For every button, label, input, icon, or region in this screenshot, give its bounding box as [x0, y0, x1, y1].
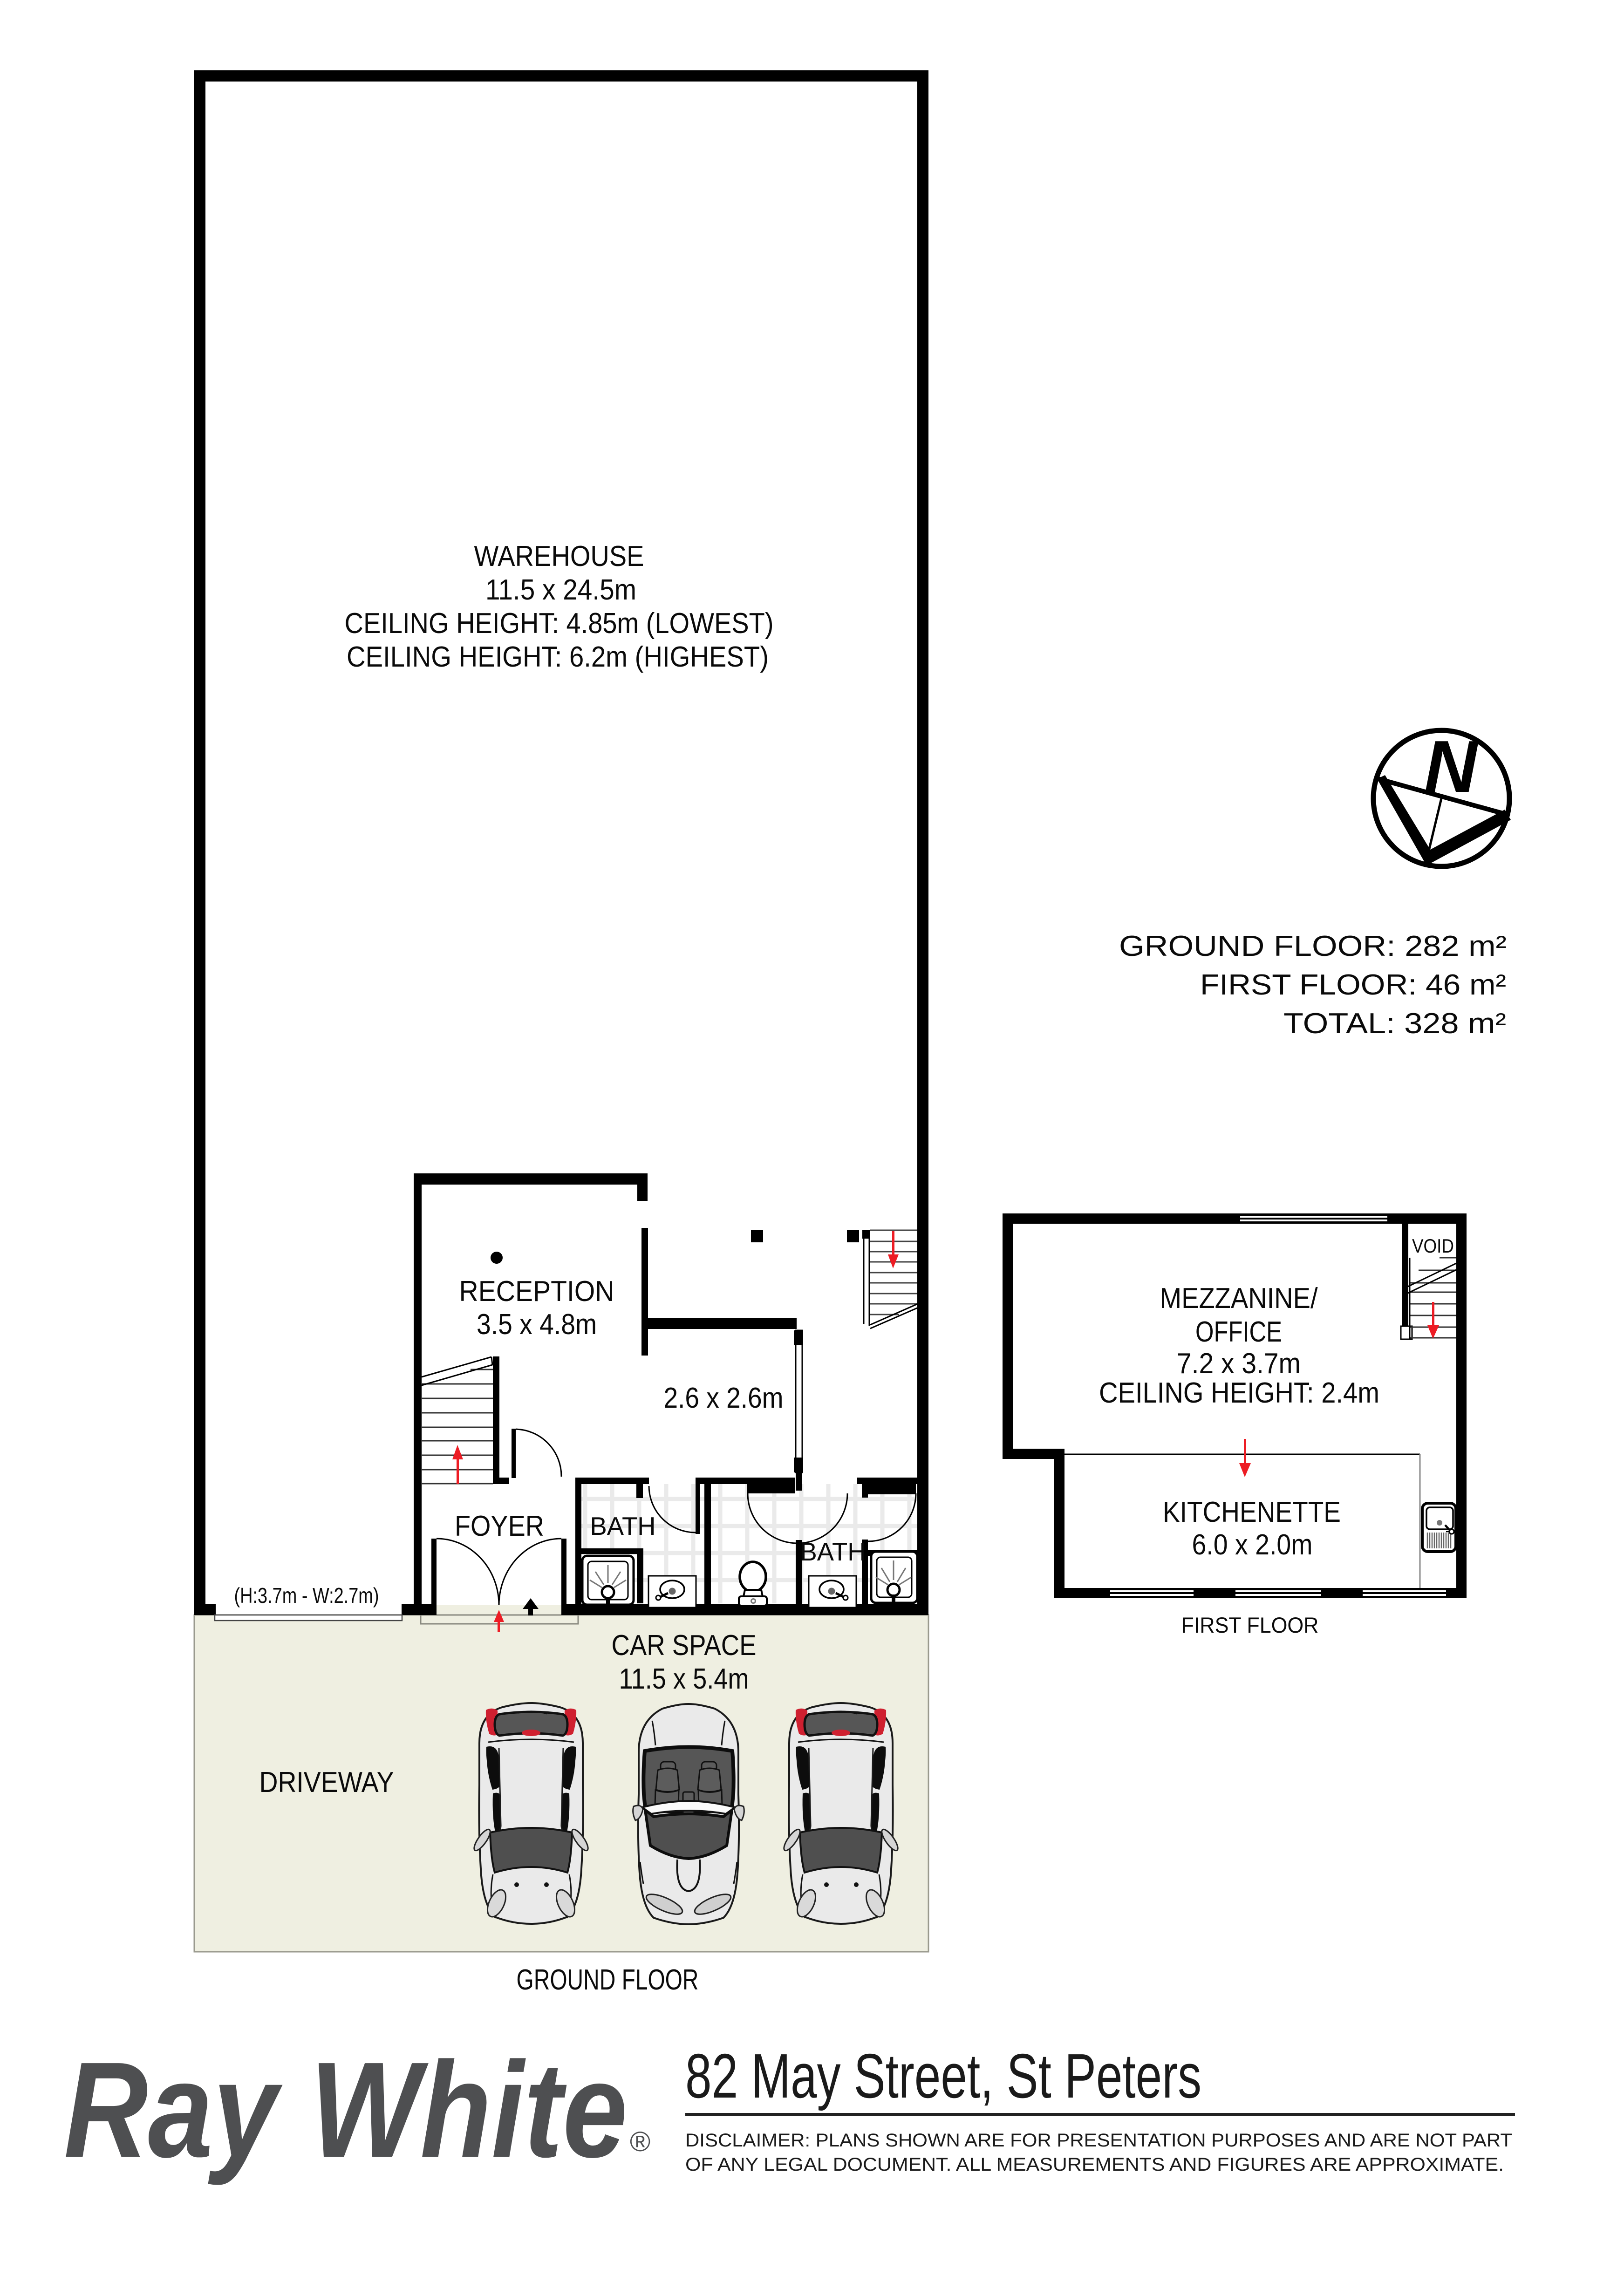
svg-text:RECEPTION: RECEPTION [459, 1275, 614, 1308]
svg-text:2.6 x 2.6m: 2.6 x 2.6m [664, 1382, 784, 1414]
svg-text:CEILING HEIGHT: 2.4m: CEILING HEIGHT: 2.4m [1099, 1377, 1379, 1409]
svg-text:WAREHOUSE: WAREHOUSE [474, 540, 644, 572]
svg-text:OFFICE: OFFICE [1195, 1316, 1282, 1348]
svg-text:82 May Street, St Peters: 82 May Street, St Peters [685, 2041, 1201, 2111]
svg-text:11.5 x 5.4m: 11.5 x 5.4m [619, 1663, 749, 1695]
svg-text:GROUND FLOOR: 282 m²: GROUND FLOOR: 282 m² [1119, 930, 1507, 962]
svg-text:CEILING HEIGHT: 6.2m (HIGHEST): CEILING HEIGHT: 6.2m (HIGHEST) [347, 641, 769, 673]
svg-text:CAR SPACE: CAR SPACE [612, 1629, 757, 1662]
svg-text:BATH: BATH [800, 1537, 866, 1566]
svg-text:MEZZANINE/: MEZZANINE/ [1160, 1282, 1318, 1315]
svg-text:®: ® [630, 2126, 650, 2157]
svg-text:DRIVEWAY: DRIVEWAY [259, 1766, 394, 1799]
svg-text:DISCLAIMER: PLANS SHOWN ARE F: DISCLAIMER: PLANS SHOWN ARE FOR PRESENTA… [685, 2130, 1512, 2151]
svg-text:CEILING HEIGHT: 4.85m (LOWEST): CEILING HEIGHT: 4.85m (LOWEST) [345, 607, 774, 640]
svg-text:VOID: VOID [1412, 1235, 1454, 1257]
svg-text:BATH: BATH [590, 1512, 656, 1540]
svg-text:Ray White: Ray White [64, 2034, 628, 2187]
svg-text:3.5 x 4.8m: 3.5 x 4.8m [477, 1308, 597, 1341]
svg-text:OF ANY LEGAL DOCUMENT. ALL MEA: OF ANY LEGAL DOCUMENT. ALL MEASUREMENTS … [685, 2154, 1504, 2175]
svg-text:KITCHENETTE: KITCHENETTE [1163, 1496, 1341, 1528]
svg-text:FIRST FLOOR: 46 m²: FIRST FLOOR: 46 m² [1200, 969, 1506, 1001]
svg-text:N: N [1424, 726, 1479, 808]
svg-text:TOTAL: 328 m²: TOTAL: 328 m² [1283, 1008, 1506, 1040]
svg-text:GROUND FLOOR: GROUND FLOOR [517, 1964, 699, 1996]
svg-text:6.0 x 2.0m: 6.0 x 2.0m [1192, 1529, 1313, 1561]
svg-text:FOYER: FOYER [455, 1510, 544, 1542]
svg-text:7.2 x 3.7m: 7.2 x 3.7m [1177, 1348, 1301, 1380]
svg-text:(H:3.7m - W:2.7m): (H:3.7m - W:2.7m) [234, 1583, 379, 1608]
svg-text:11.5 x 24.5m: 11.5 x 24.5m [485, 574, 636, 606]
svg-text:FIRST FLOOR: FIRST FLOOR [1181, 1613, 1319, 1637]
